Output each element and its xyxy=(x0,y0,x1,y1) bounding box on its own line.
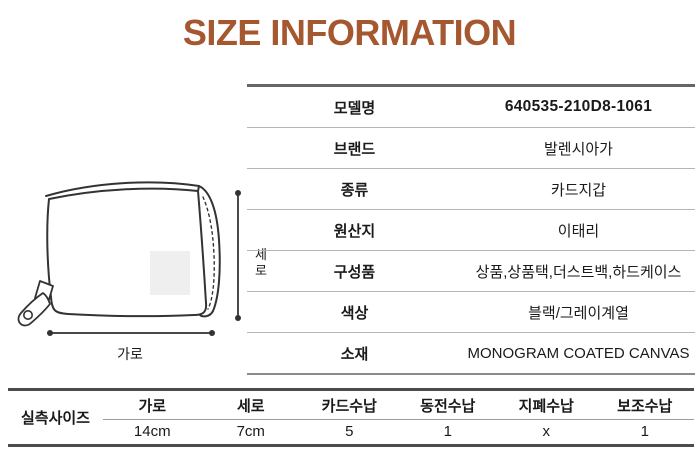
width-measure-dot-right xyxy=(209,330,215,336)
spec-row-material: 소재 MONOGRAM COATED CANVAS xyxy=(247,333,695,373)
size-col-header-card-slots: 카드수납 xyxy=(300,391,399,419)
spec-row-color: 색상 블랙/그레이계열 xyxy=(247,292,695,333)
spec-row-components: 구성품 상품,상품택,더스트백,하드케이스 xyxy=(247,251,695,292)
size-value-width: 14cm xyxy=(103,420,202,444)
spec-value: MONOGRAM COATED CANVAS xyxy=(462,345,695,362)
spec-label: 구성품 xyxy=(247,261,462,282)
spec-label: 원산지 xyxy=(247,220,462,241)
spec-table: 모델명 640535-210D8-1061 브랜드 발렌시아가 종류 카드지갑 … xyxy=(247,84,695,375)
height-measure-dot-bottom xyxy=(235,315,241,321)
spec-row-brand: 브랜드 발렌시아가 xyxy=(247,128,695,169)
size-col-header-width: 가로 xyxy=(103,391,202,419)
spec-label: 모델명 xyxy=(247,97,462,118)
spec-label: 브랜드 xyxy=(247,138,462,159)
width-label: 가로 xyxy=(100,344,160,364)
height-measure-line xyxy=(237,194,239,316)
size-value-extra-slots: 1 xyxy=(596,420,695,444)
spec-row-model: 모델명 640535-210D8-1061 xyxy=(247,87,695,128)
size-table-label: 실측사이즈 xyxy=(8,391,103,444)
size-col-header-coin-slots: 동전수납 xyxy=(399,391,498,419)
spec-label: 색상 xyxy=(247,302,462,323)
size-table-header-row: 가로 세로 카드수납 동전수납 지폐수납 보조수납 xyxy=(103,391,694,420)
size-value-bill-slots: x xyxy=(497,420,596,444)
spec-value: 640535-210D8-1061 xyxy=(462,98,695,116)
size-col-header-bill-slots: 지폐수납 xyxy=(497,391,596,419)
size-value-card-slots: 5 xyxy=(300,420,399,444)
width-measure-dot-left xyxy=(47,330,53,336)
spec-value: 상품,상품택,더스트백,하드케이스 xyxy=(462,261,695,282)
spec-value: 블랙/그레이계열 xyxy=(462,302,695,323)
spec-label: 소재 xyxy=(247,343,462,364)
page-title: SIZE INFORMATION xyxy=(0,12,699,54)
size-value-height: 7cm xyxy=(202,420,301,444)
size-information-sheet: SIZE INFORMATION 세로 가로 모델명 xyxy=(0,0,699,454)
spec-label: 종류 xyxy=(247,179,462,200)
size-table: 실측사이즈 가로 세로 카드수납 동전수납 지폐수납 보조수납 14cm 7cm… xyxy=(8,388,694,447)
size-col-header-extra-slots: 보조수납 xyxy=(596,391,695,419)
wallet-shading xyxy=(150,251,190,295)
height-measure-dot-top xyxy=(235,190,241,196)
spec-row-type: 종류 카드지갑 xyxy=(247,169,695,210)
width-measure-line xyxy=(51,332,211,334)
spec-value: 카드지갑 xyxy=(462,179,695,200)
size-value-coin-slots: 1 xyxy=(399,420,498,444)
spec-value: 이태리 xyxy=(462,220,695,241)
wallet-sketch xyxy=(2,165,232,365)
spec-row-origin: 원산지 이태리 xyxy=(247,210,695,251)
size-col-header-height: 세로 xyxy=(202,391,301,419)
size-table-value-row: 14cm 7cm 5 1 x 1 xyxy=(103,420,694,444)
spec-value: 발렌시아가 xyxy=(462,138,695,159)
